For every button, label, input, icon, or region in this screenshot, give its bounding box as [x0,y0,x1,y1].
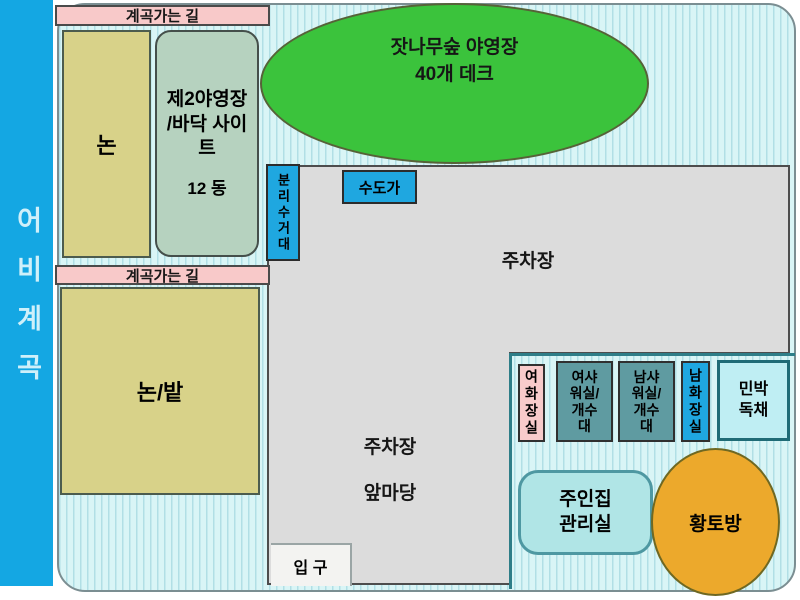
rice-field-label: 논/밭 [137,375,184,407]
womens-toilet-label: 여화장실 [525,369,539,437]
rice-paddy-area: 논 [62,30,151,258]
womens-toilet: 여화장실 [518,364,545,442]
recycling-station: 분리수거대 [266,164,300,261]
mens-toilet: 남화장실 [681,361,710,442]
campground-map: 어비계곡 잣나무숲 야영장 40개 데크 계곡가는 길 계곡가는 길 논 제2야… [0,0,800,600]
recycling-label: 분리수거대 [277,173,290,253]
second-campground-area: 제2야영장 /바닥 사이트 12 동 [155,30,259,257]
owner-house-label: 주인집 관리실 [559,488,611,537]
pine-camp-area: 잣나무숲 야영장 40개 데크 [260,3,649,164]
mens-shower-sink: 남샤워실/개수대 [618,361,675,442]
front-yard-label: 앞마당 [320,478,460,505]
entrance-gate: 입 구 [271,543,352,586]
parking-upper-label: 주차장 [458,246,598,273]
owner-house-office: 주인집 관리실 [518,470,653,555]
pine-camp-name: 잣나무숲 야영장 [391,35,519,62]
rice-field-area: 논/밭 [60,287,260,495]
valley-label: 어비계곡 [13,206,40,402]
loess-room-label: 황토방 [689,509,741,536]
second-campground-name: 제2야영장 /바닥 사이트 [166,88,248,162]
road-top-label: 계곡가는 길 [126,5,199,26]
womens-shower-label: 여샤워실/개수대 [566,369,604,433]
loess-room: 황토방 [651,448,780,596]
water-station-label: 수도가 [359,177,400,198]
parking-lower-label: 주차장 [320,432,460,459]
second-campground-units: 12 동 [187,174,226,199]
mens-shower-label: 남샤워실/개수대 [628,369,666,433]
guesthouse-label: 민박 독채 [739,380,768,422]
valley-bar: 어비계곡 [0,0,53,586]
road-middle-label: 계곡가는 길 [126,265,199,286]
womens-shower-sink: 여샤워실/개수대 [556,361,613,442]
pine-camp-capacity: 40개 데크 [415,62,494,89]
road-to-valley-middle: 계곡가는 길 [55,265,270,285]
mens-toilet-label: 남화장실 [689,368,703,436]
rice-paddy-label: 논 [96,128,116,160]
road-to-valley-top: 계곡가는 길 [55,5,270,26]
entrance-label: 입 구 [294,554,328,578]
water-station: 수도가 [342,170,417,204]
guesthouse: 민박 독채 [717,360,790,441]
